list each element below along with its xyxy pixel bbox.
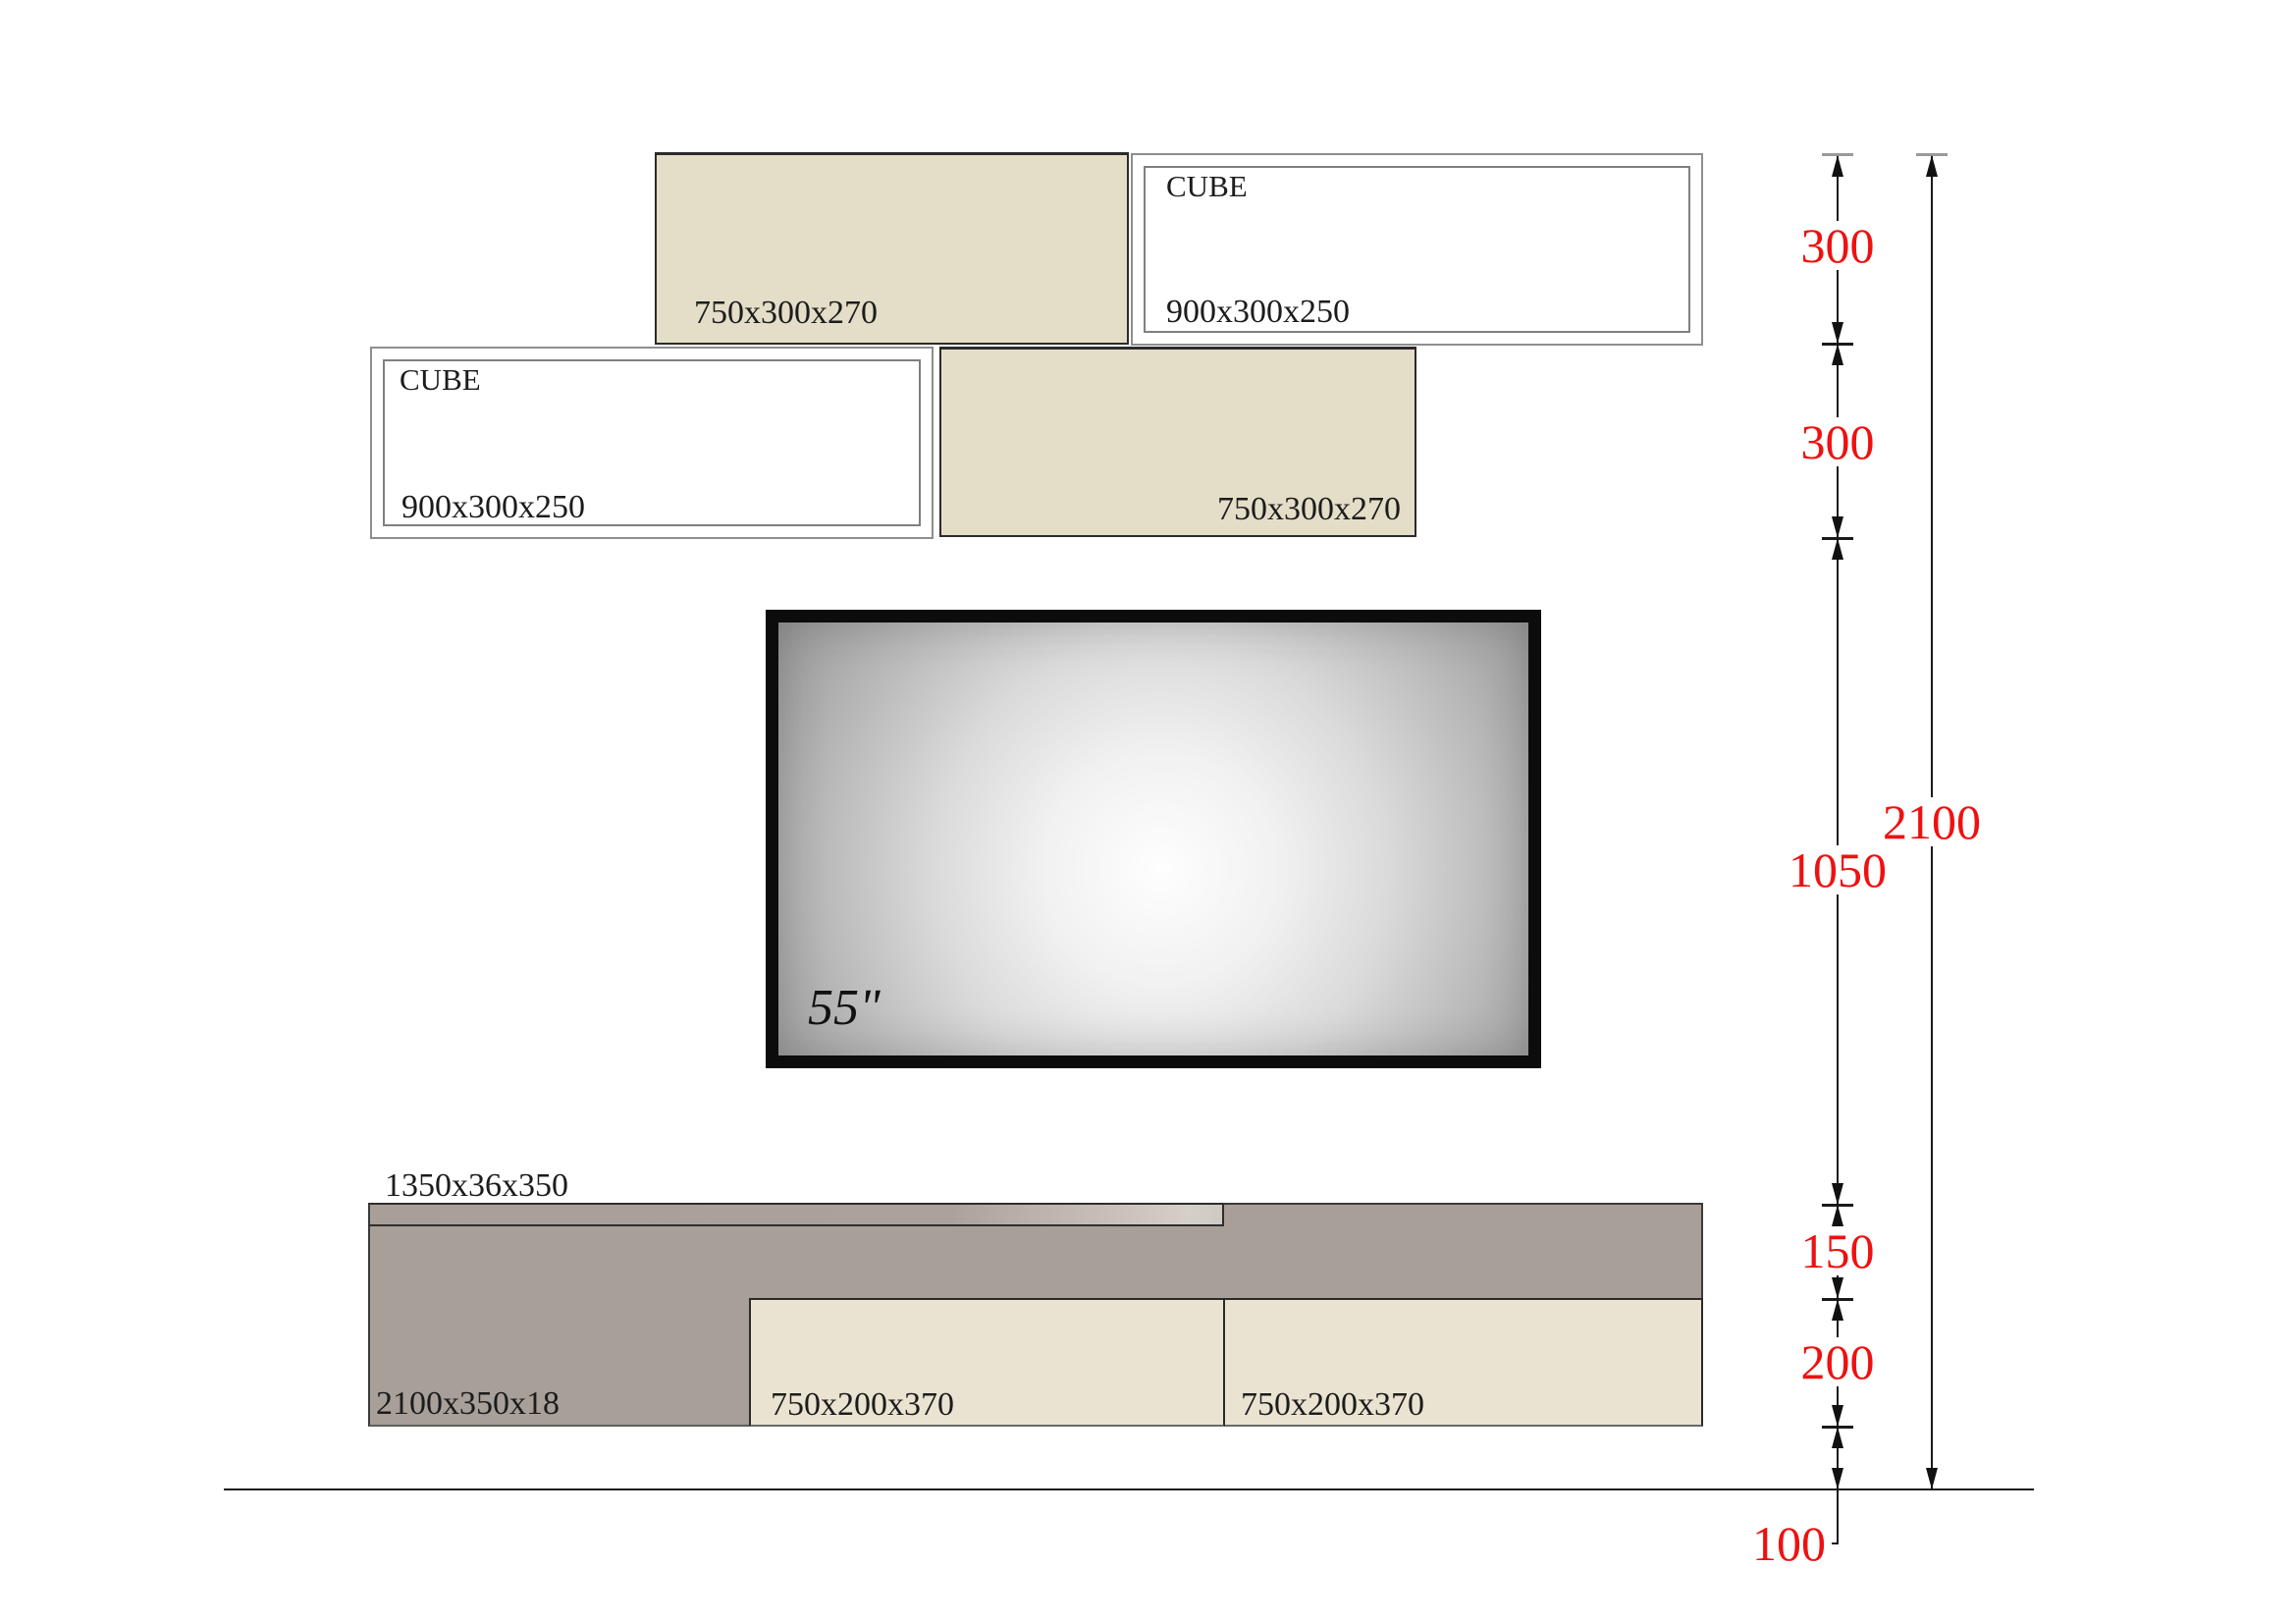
cube-shelf-left-dimensions-label: 900x300x250 (401, 490, 585, 525)
cube-shelf-left-title: CUBE (400, 364, 481, 397)
dim-arrow-up-icon (1832, 344, 1843, 365)
furniture-elevation-drawing: 750x300x270 CUBE 900x300x250 CUBE 900x30… (0, 0, 2296, 1623)
dim-arrow-up-icon (1832, 155, 1843, 177)
drawer-right-dimensions-label: 750x200x370 (1241, 1387, 1424, 1423)
dim-label-150: 150 (1795, 1226, 1881, 1275)
dim-arrow-up-icon (1832, 1427, 1843, 1448)
tv-screen: 55" (778, 622, 1528, 1055)
tv-55-inch: 55" (766, 610, 1541, 1068)
drawer-right: 750x200x370 (1225, 1298, 1703, 1427)
dim-arrow-down-icon (1832, 322, 1843, 344)
dim-label-300-second: 300 (1795, 417, 1881, 466)
tv-size-label: 55" (808, 983, 881, 1034)
dim-label-1050: 1050 (1783, 845, 1893, 894)
dim-arrow-up-icon (1832, 538, 1843, 560)
cube-shelf-right-title: CUBE (1166, 171, 1248, 203)
dim-label-200: 200 (1795, 1337, 1881, 1386)
back-panel-dimensions-label: 2100x350x18 (376, 1386, 560, 1422)
cube-shelf-right: CUBE 900x300x250 (1131, 153, 1703, 346)
dim-arrow-down-icon (1832, 516, 1843, 538)
shelf-cube-top-dimensions-label: 750x300x270 (694, 296, 878, 331)
dim-arrow-down-icon (1926, 1468, 1938, 1489)
dim-arrow-up-icon (1926, 155, 1938, 177)
dim-arrow-up-icon (1832, 1299, 1843, 1321)
shelf-cube-middle: 750x300x270 (939, 347, 1416, 537)
dim-label-100-floor-offset: 100 (1659, 1519, 1832, 1568)
cube-shelf-right-dimensions-label: 900x300x250 (1166, 295, 1350, 330)
drawer-left-dimensions-label: 750x200x370 (771, 1387, 954, 1423)
cube-shelf-left: CUBE 900x300x250 (370, 347, 934, 539)
dim-arrow-down-icon (1832, 1405, 1843, 1427)
dim-arrow-down-icon (1832, 1468, 1843, 1489)
shelf-cube-top: 750x300x270 (655, 152, 1129, 345)
dim-label-300-top: 300 (1795, 221, 1881, 270)
dim-label-2100-total: 2100 (1877, 797, 1987, 846)
drawer-left: 750x200x370 (749, 1298, 1225, 1427)
top-shelf (368, 1203, 1224, 1226)
dimension-line-segments-extension (1837, 1489, 1839, 1544)
shelf-cube-middle-dimensions-label: 750x300x270 (1217, 492, 1401, 527)
floor-line (224, 1488, 2034, 1490)
dim-arrow-down-icon (1832, 1183, 1843, 1205)
top-shelf-dimensions-label: 1350x36x350 (385, 1168, 568, 1204)
dim-arrow-down-icon (1832, 1277, 1843, 1299)
